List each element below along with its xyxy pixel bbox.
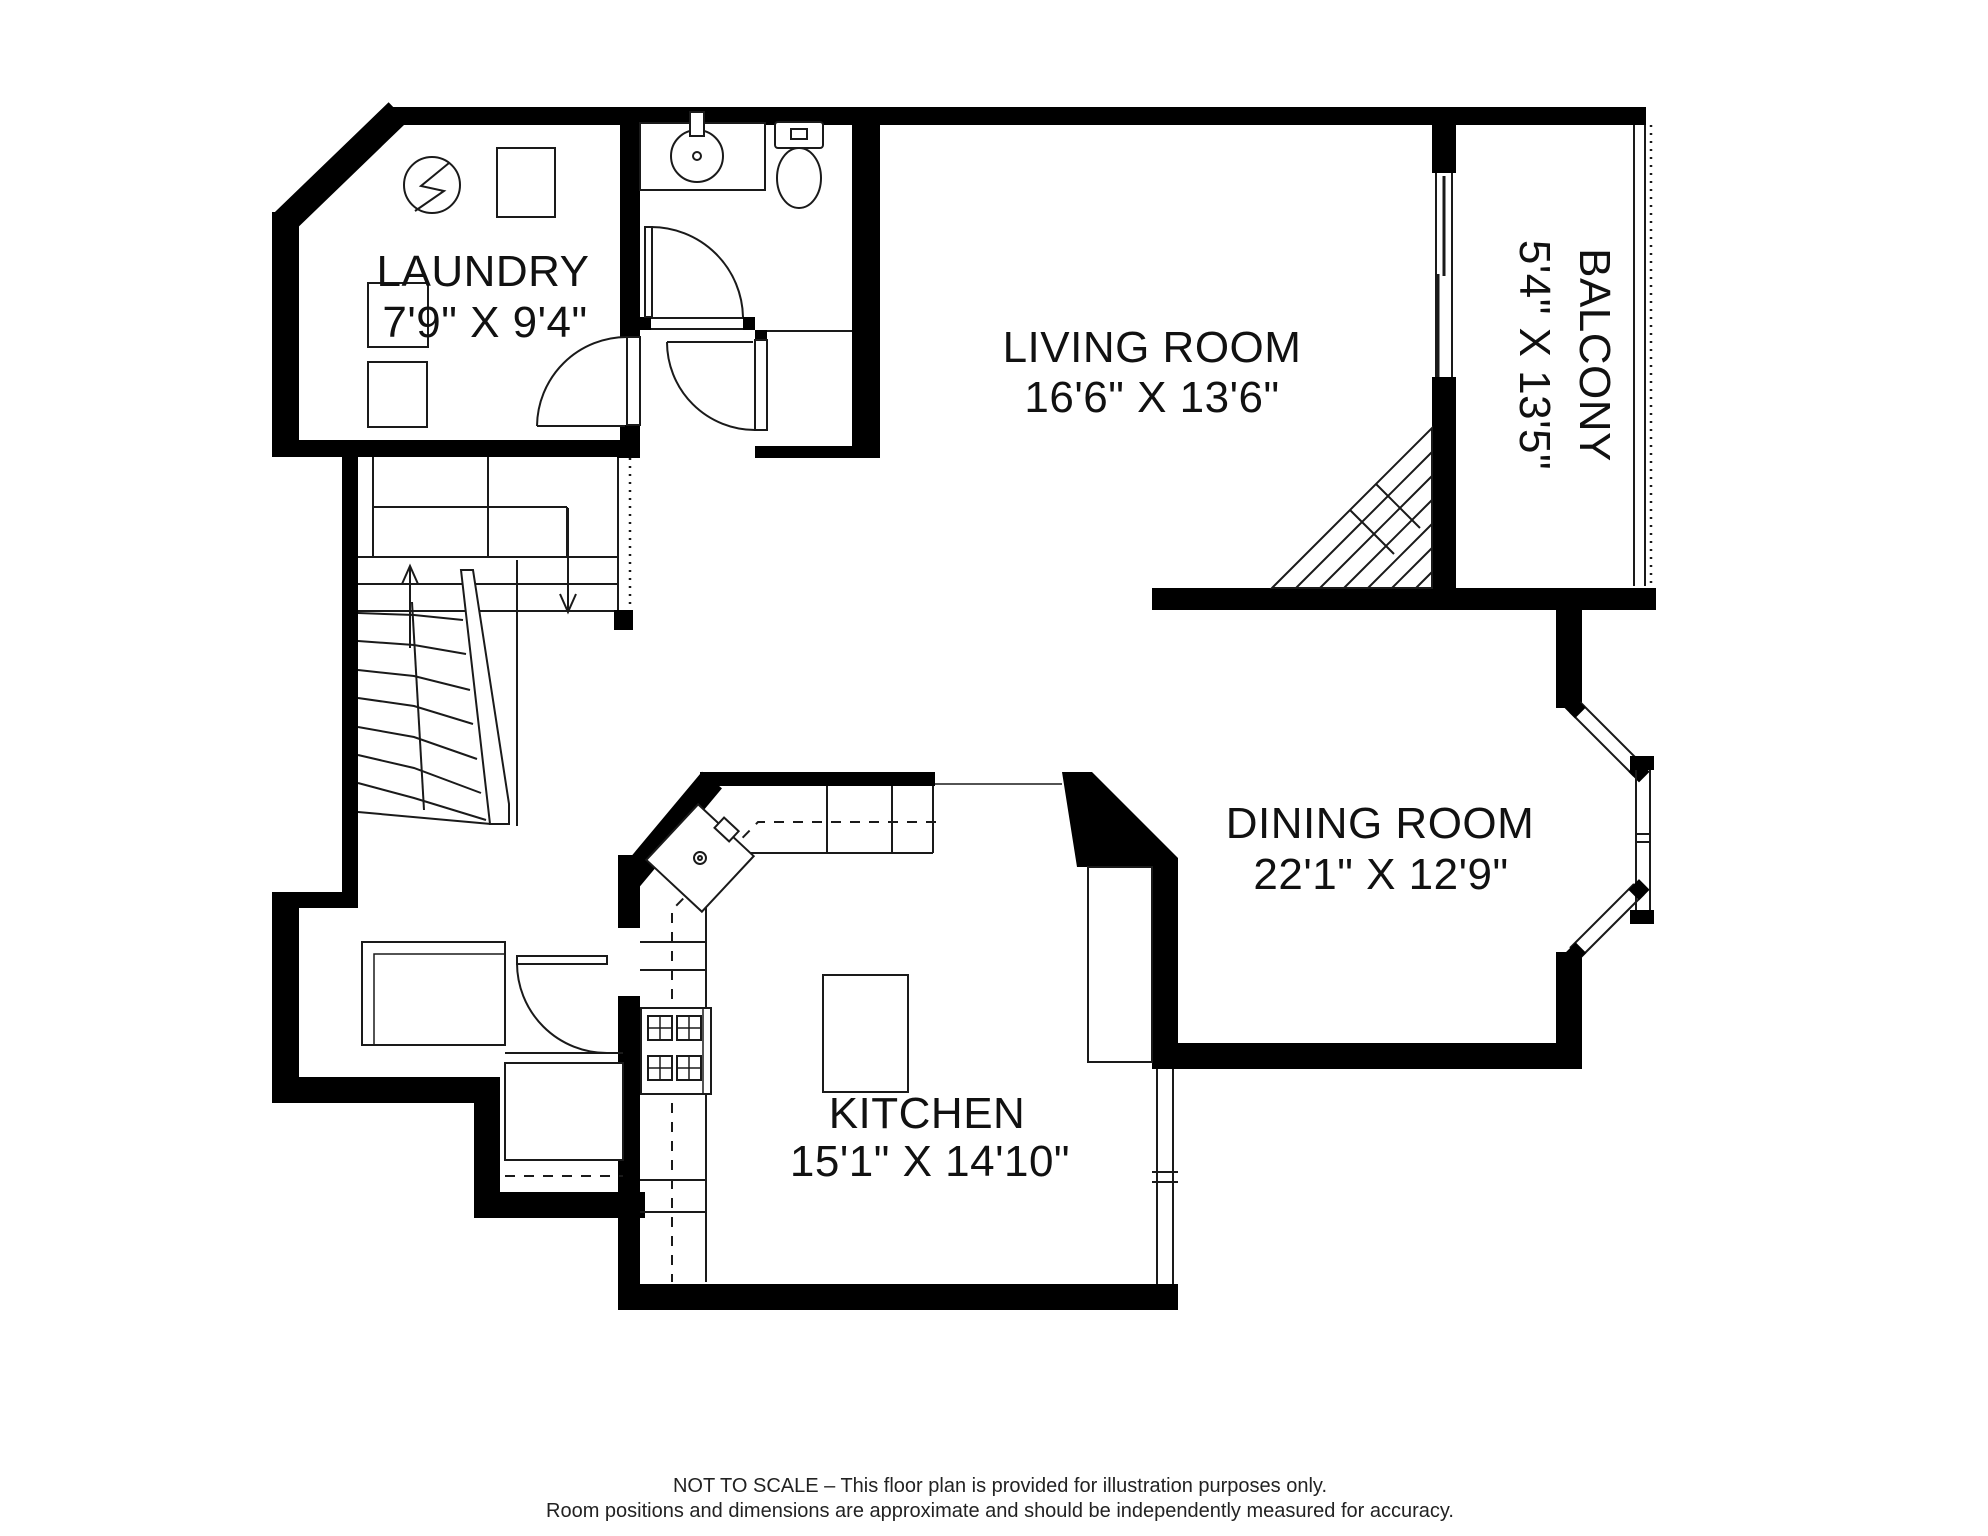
floor-plan-svg: LAUNDRY 7'9" X 9'4" LIVING ROOM 16'6" X …	[0, 0, 1988, 1536]
floor-plan-page: LAUNDRY 7'9" X 9'4" LIVING ROOM 16'6" X …	[0, 0, 1988, 1536]
balcony-dims: 5'4" X 13'5"	[1510, 240, 1559, 470]
laundry-door	[537, 337, 640, 426]
kitchen-fixtures	[640, 784, 1152, 1282]
toilet-icon	[775, 122, 823, 208]
sink-icon	[640, 112, 765, 190]
balcony-railing	[1634, 125, 1651, 586]
appliance-alcove	[505, 1063, 623, 1160]
island-icon	[823, 975, 908, 1092]
right-counter	[1088, 867, 1152, 1062]
powder-room-door	[645, 227, 743, 329]
laundry-dims: 7'9" X 9'4"	[382, 298, 587, 347]
doors	[517, 227, 852, 1053]
disclaimer-line1: NOT TO SCALE – This floor plan is provid…	[673, 1475, 1327, 1497]
staircase	[358, 457, 633, 826]
up-arrow-icon	[402, 566, 418, 648]
range-burners-icon	[641, 1008, 711, 1094]
dining-room-dims: 22'1" X 12'9"	[1253, 850, 1508, 899]
kitchen-label: KITCHEN	[829, 1089, 1026, 1138]
dining-room-label: DINING ROOM	[1226, 799, 1535, 848]
kitchen-hall-door	[517, 956, 607, 1053]
washer-dryer-icon	[497, 148, 555, 217]
balcony-label: BALCONY	[1570, 248, 1619, 462]
kitchen-dims: 15'1" X 14'10"	[790, 1137, 1070, 1186]
hatched-area	[1272, 428, 1432, 588]
utility-circle-icon	[404, 157, 460, 213]
closet-shelf-icon	[362, 942, 505, 1045]
down-arrow-icon	[560, 508, 576, 612]
laundry-label: LAUNDRY	[377, 247, 590, 296]
washer-dryer-icon	[368, 362, 427, 427]
balcony-slider-window	[1436, 173, 1452, 377]
kitchen-window	[1152, 1069, 1178, 1284]
stair-rail-wedge	[461, 570, 509, 824]
kitchen-sink-icon	[646, 798, 759, 911]
stair-hall-door	[667, 331, 852, 430]
powder-room-fixtures	[640, 112, 823, 208]
living-room-label: LIVING ROOM	[1003, 323, 1302, 372]
disclaimer: NOT TO SCALE – This floor plan is provid…	[546, 1475, 1454, 1522]
disclaimer-line2: Room positions and dimensions are approx…	[546, 1500, 1454, 1522]
bay-window-face	[1630, 756, 1654, 924]
living-room-dims: 16'6" X 13'6"	[1024, 373, 1279, 422]
